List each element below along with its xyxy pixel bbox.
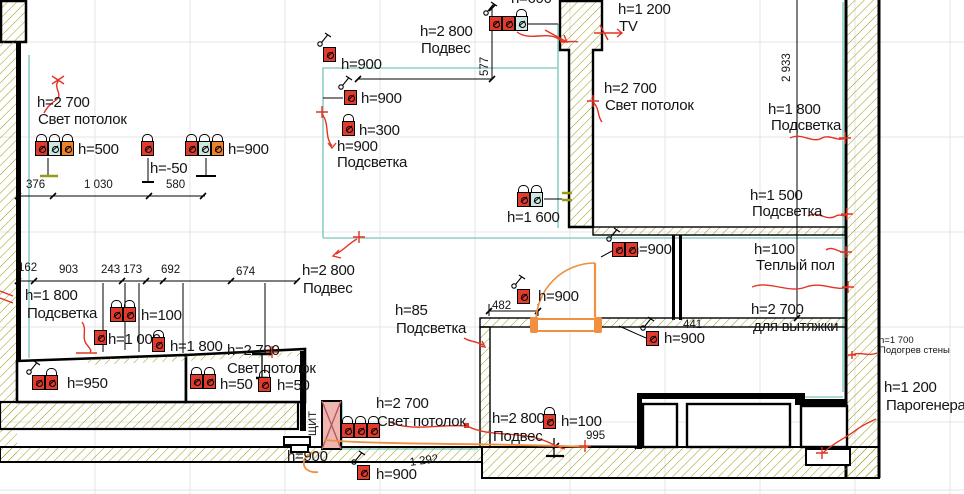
height-900-b: h=900 — [361, 91, 402, 107]
socket-cell-red — [502, 16, 515, 31]
name-podsvetka-mid: Подсветка — [396, 321, 466, 337]
outlet-group-1600 — [517, 192, 543, 207]
socket-cell-red — [35, 141, 48, 156]
name-dlya-vytyazhki: для вытяжки — [753, 319, 838, 335]
fixture-hat-icon — [368, 416, 379, 423]
height-900-bottommid: h=900 — [376, 467, 417, 483]
fixture-hat-icon — [46, 368, 57, 375]
outlet-group-100-kitchen — [110, 307, 136, 322]
fixture-hat-icon — [204, 367, 215, 374]
outlet-900-a — [323, 47, 336, 62]
fixture-hat-icon — [49, 134, 60, 141]
floor-plan-canvas: h=2 700Свет потолокh=500h=-50h=9003761 0… — [0, 0, 964, 494]
dim-2933: 2 933 — [781, 53, 793, 82]
switch-icon — [337, 74, 354, 91]
height-2700-topright: h=2 700 — [604, 81, 657, 97]
height-85: h=85 — [395, 303, 428, 319]
height-minus-50: h=-50 — [150, 161, 187, 177]
outlet-group-900-topleft — [185, 141, 224, 156]
height-1800-right: h=1 800 — [768, 102, 821, 118]
height-500: h=500 — [78, 142, 119, 158]
switch-icon — [605, 226, 622, 243]
dim-173: 173 — [123, 264, 142, 276]
height-2800-bottommid: h=2 800 — [492, 411, 545, 427]
socket-cell-red — [646, 331, 659, 346]
socket-cell-red — [367, 423, 380, 438]
socket-cell-red — [342, 121, 355, 136]
annotation-layer: h=2 700Свет потолокh=500h=-50h=9003761 0… — [0, 0, 964, 494]
socket-cell-orange — [61, 141, 74, 156]
name-ceiling-light-kitchen: Свет потолок — [227, 361, 316, 377]
name-ceiling-light-bottommid: Свет потолок — [377, 414, 466, 430]
fixture-hat-icon — [36, 134, 47, 141]
height-2800-mid: h=2 800 — [302, 263, 355, 279]
socket-cell-teal — [530, 192, 543, 207]
socket-cell-red — [94, 330, 107, 345]
fixture-hat-icon — [516, 9, 527, 16]
outlet-group-600-top — [489, 16, 528, 31]
switch-icon — [25, 359, 42, 376]
dim-903: 903 — [59, 264, 78, 276]
switch-icon — [639, 315, 656, 332]
name-podves-bottommid: Подвес — [493, 429, 542, 445]
socket-cell-red — [258, 377, 271, 392]
height-100-bottommid: h=100 — [561, 414, 602, 430]
outlet-900-mid — [612, 242, 638, 257]
height-900-bottomleft: h=900 — [287, 449, 328, 465]
height-300: h=300 — [359, 123, 400, 139]
outlet-group-50 — [190, 374, 216, 389]
dim-243: 243 — [101, 264, 120, 276]
socket-cell-red — [185, 141, 198, 156]
socket-cell-red — [45, 375, 58, 390]
outlet-900-441 — [646, 331, 659, 346]
fixture-hat-icon — [124, 300, 135, 307]
socket-cell-red — [323, 47, 336, 62]
height-1800-kitchenleft: h=1 800 — [25, 288, 78, 304]
socket-cell-red — [32, 375, 45, 390]
name-parogenerator: Парогенератор — [886, 398, 964, 414]
fixture-hat-icon — [342, 416, 353, 423]
name-teply-pol: Теплый пол — [756, 258, 835, 274]
height-50-a: h=50 — [220, 377, 253, 393]
height-2800-top: h=2 800 — [420, 24, 473, 40]
switch-icon — [350, 449, 367, 466]
socket-cell-teal — [198, 141, 211, 156]
name-podsvetka-kitchenleft: Подсветка — [27, 306, 97, 322]
height-900-441: h=900 — [664, 331, 705, 347]
socket-cell-red — [357, 465, 370, 480]
socket-cell-red — [517, 289, 530, 304]
name-podves-mid: Подвес — [303, 281, 352, 297]
height-ceiling-light-topleft: h=2 700 — [37, 95, 90, 111]
dim-692: 692 — [161, 264, 180, 276]
fixture-hat-icon — [199, 134, 210, 141]
name-podsvetka-right2: Подсветка — [752, 204, 822, 220]
dim-580: 580 — [166, 179, 185, 191]
dim-376: 376 — [26, 179, 45, 191]
socket-cell-red — [344, 90, 357, 105]
fixture-hat-icon — [544, 407, 555, 414]
fixture-hat-icon — [343, 114, 354, 121]
switch-icon — [482, 0, 499, 17]
fixture-hat-icon — [142, 134, 153, 141]
outlet-1000 — [94, 330, 107, 345]
height-900-a: h=900 — [341, 57, 382, 73]
name-podogrev-steny: Подогрев стены — [879, 346, 950, 356]
height-1200-steam: h=1 200 — [884, 380, 937, 396]
fixture-hat-icon — [259, 370, 270, 377]
fixture-hat-icon — [186, 134, 197, 141]
outlet-300 — [342, 121, 355, 136]
dim-482: 482 — [492, 300, 511, 312]
socket-cell-red — [625, 242, 638, 257]
socket-cell-red — [543, 414, 556, 429]
outlet-50-single — [258, 377, 271, 392]
fixture-hat-icon — [518, 185, 529, 192]
outlet-900-bottom — [357, 465, 370, 480]
outlet-group-950 — [32, 375, 58, 390]
fixture-hat-icon — [191, 367, 202, 374]
dim-674: 674 — [236, 266, 255, 278]
name-tv: TV — [619, 19, 638, 35]
height-2700-bottommid: h=2 700 — [376, 396, 429, 412]
height-900-topleft: h=900 — [228, 142, 269, 158]
socket-cell-red — [110, 307, 123, 322]
outlet-group-panel — [341, 423, 380, 438]
dim-162: 162 — [18, 262, 37, 274]
socket-cell-red — [152, 337, 165, 352]
height-1600: h=1 600 — [507, 210, 560, 226]
socket-cell-red — [203, 374, 216, 389]
outlet-1800-kitchen — [152, 337, 165, 352]
height-100-kitchen: h=100 — [141, 308, 182, 324]
height-600-clipped: h=600 — [511, 0, 552, 7]
height-50-b: h=50 — [277, 378, 310, 394]
switch-icon — [316, 31, 333, 48]
socket-cell-red — [612, 242, 625, 257]
fixture-hat-icon — [111, 300, 122, 307]
socket-cell-red — [141, 141, 154, 156]
fixture-hat-icon — [212, 134, 223, 141]
outlet-minus50 — [141, 141, 154, 156]
dim-577: 577 — [479, 57, 491, 76]
socket-cell-orange — [211, 141, 224, 156]
socket-cell-red — [517, 192, 530, 207]
name-ceiling-light-topright: Свет потолок — [605, 98, 694, 114]
height-100-floor: h=100 — [754, 242, 795, 258]
socket-cell-red — [341, 423, 354, 438]
height-900-c: h=900 — [337, 139, 378, 155]
height-2700-kitchen: h=2 700 — [227, 343, 280, 359]
name-podsvetka-right: Подсветка — [771, 118, 841, 134]
fixture-hat-icon — [531, 185, 542, 192]
outlet-100-bottommid — [543, 414, 556, 429]
fixture-hat-icon — [153, 330, 164, 337]
name-shield: ЩИТ — [308, 411, 320, 436]
name-podsvetka-a: Подсветка — [337, 155, 407, 171]
dim-1030: 1 030 — [84, 179, 113, 191]
socket-cell-red — [489, 16, 502, 31]
height-1800-kitchen2: h=1 800 — [170, 339, 223, 355]
name-podves-top: Подвес — [421, 41, 470, 57]
name-ceiling-light-topleft: Свет потолок — [38, 112, 127, 128]
socket-cell-red — [354, 423, 367, 438]
height-900-door: h=900 — [538, 289, 579, 305]
socket-cell-teal — [48, 141, 61, 156]
socket-cell-red — [190, 374, 203, 389]
outlet-group-500 — [35, 141, 74, 156]
outlet-900-door — [517, 289, 530, 304]
dim-995: 995 — [586, 430, 605, 442]
fixture-hat-icon — [62, 134, 73, 141]
height-1500: h=1 500 — [750, 188, 803, 204]
outlet-900-b — [344, 90, 357, 105]
switch-icon — [510, 273, 527, 290]
fixture-hat-icon — [355, 416, 366, 423]
socket-cell-red — [123, 307, 136, 322]
height-950: h=950 — [67, 376, 108, 392]
height-1200-tv: h=1 200 — [618, 2, 671, 18]
height-2700-hood: h=2 700 — [751, 302, 804, 318]
socket-cell-teal — [515, 16, 528, 31]
